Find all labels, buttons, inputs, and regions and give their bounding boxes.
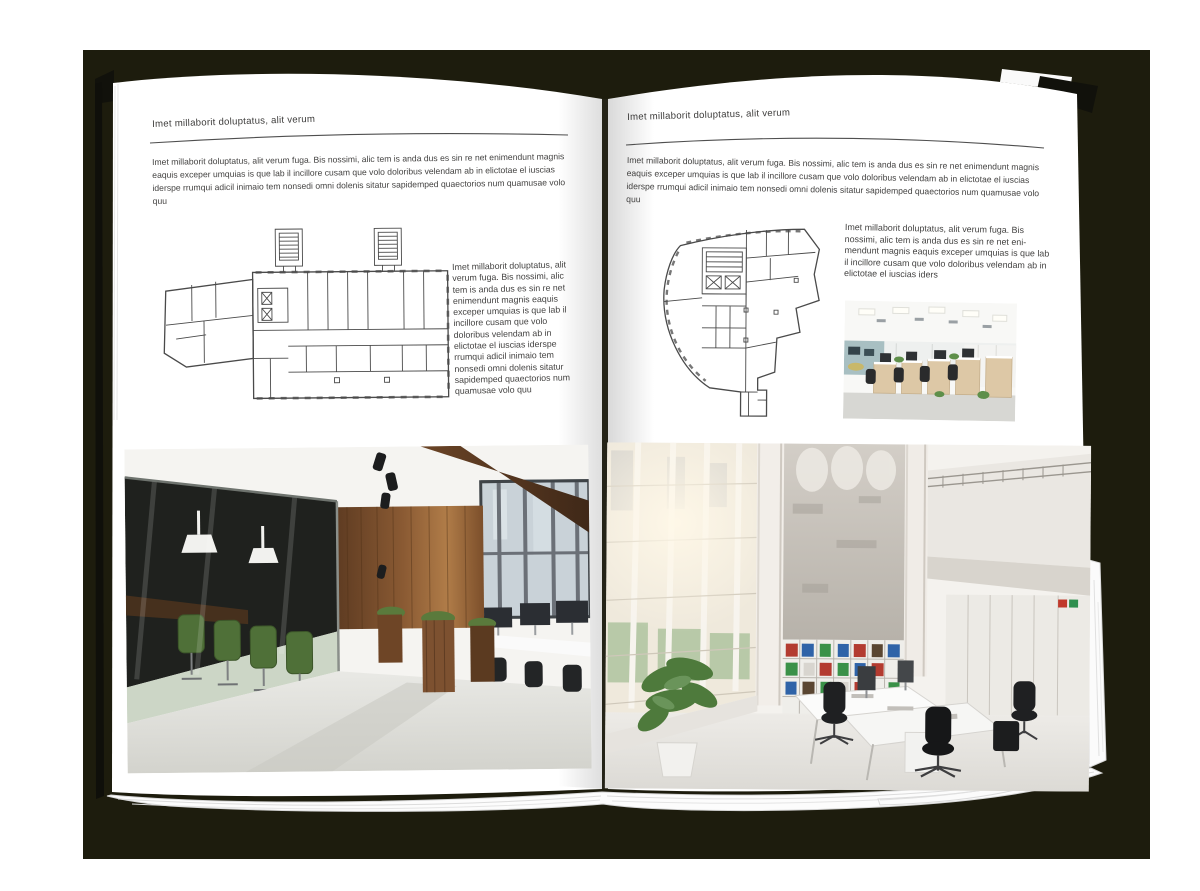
left-page-side-text: Imet millaborit doluptatus, alit verum f… (452, 259, 579, 397)
floorplan-right (647, 218, 838, 421)
right-header-rule (624, 126, 1048, 154)
photo-office-wood-glass (124, 445, 591, 774)
right-page-intro: Imet millaborit doluptatus, alit verum f… (626, 154, 1045, 213)
mockup-stage: Imet millaborit doluptatus, alit verum I… (0, 0, 1200, 891)
left-header-rule (148, 126, 570, 150)
floorplan-left (155, 225, 453, 418)
cover-spine-left (95, 82, 104, 799)
photo-office-cubicles (843, 301, 1017, 422)
left-page-intro: Imet millaborit doluptatus, alit verum f… (152, 150, 567, 208)
photo-office-white-loft (605, 442, 1091, 791)
right-page-side-text: Imet millaborit doluptatus, alit verum f… (844, 222, 1053, 284)
